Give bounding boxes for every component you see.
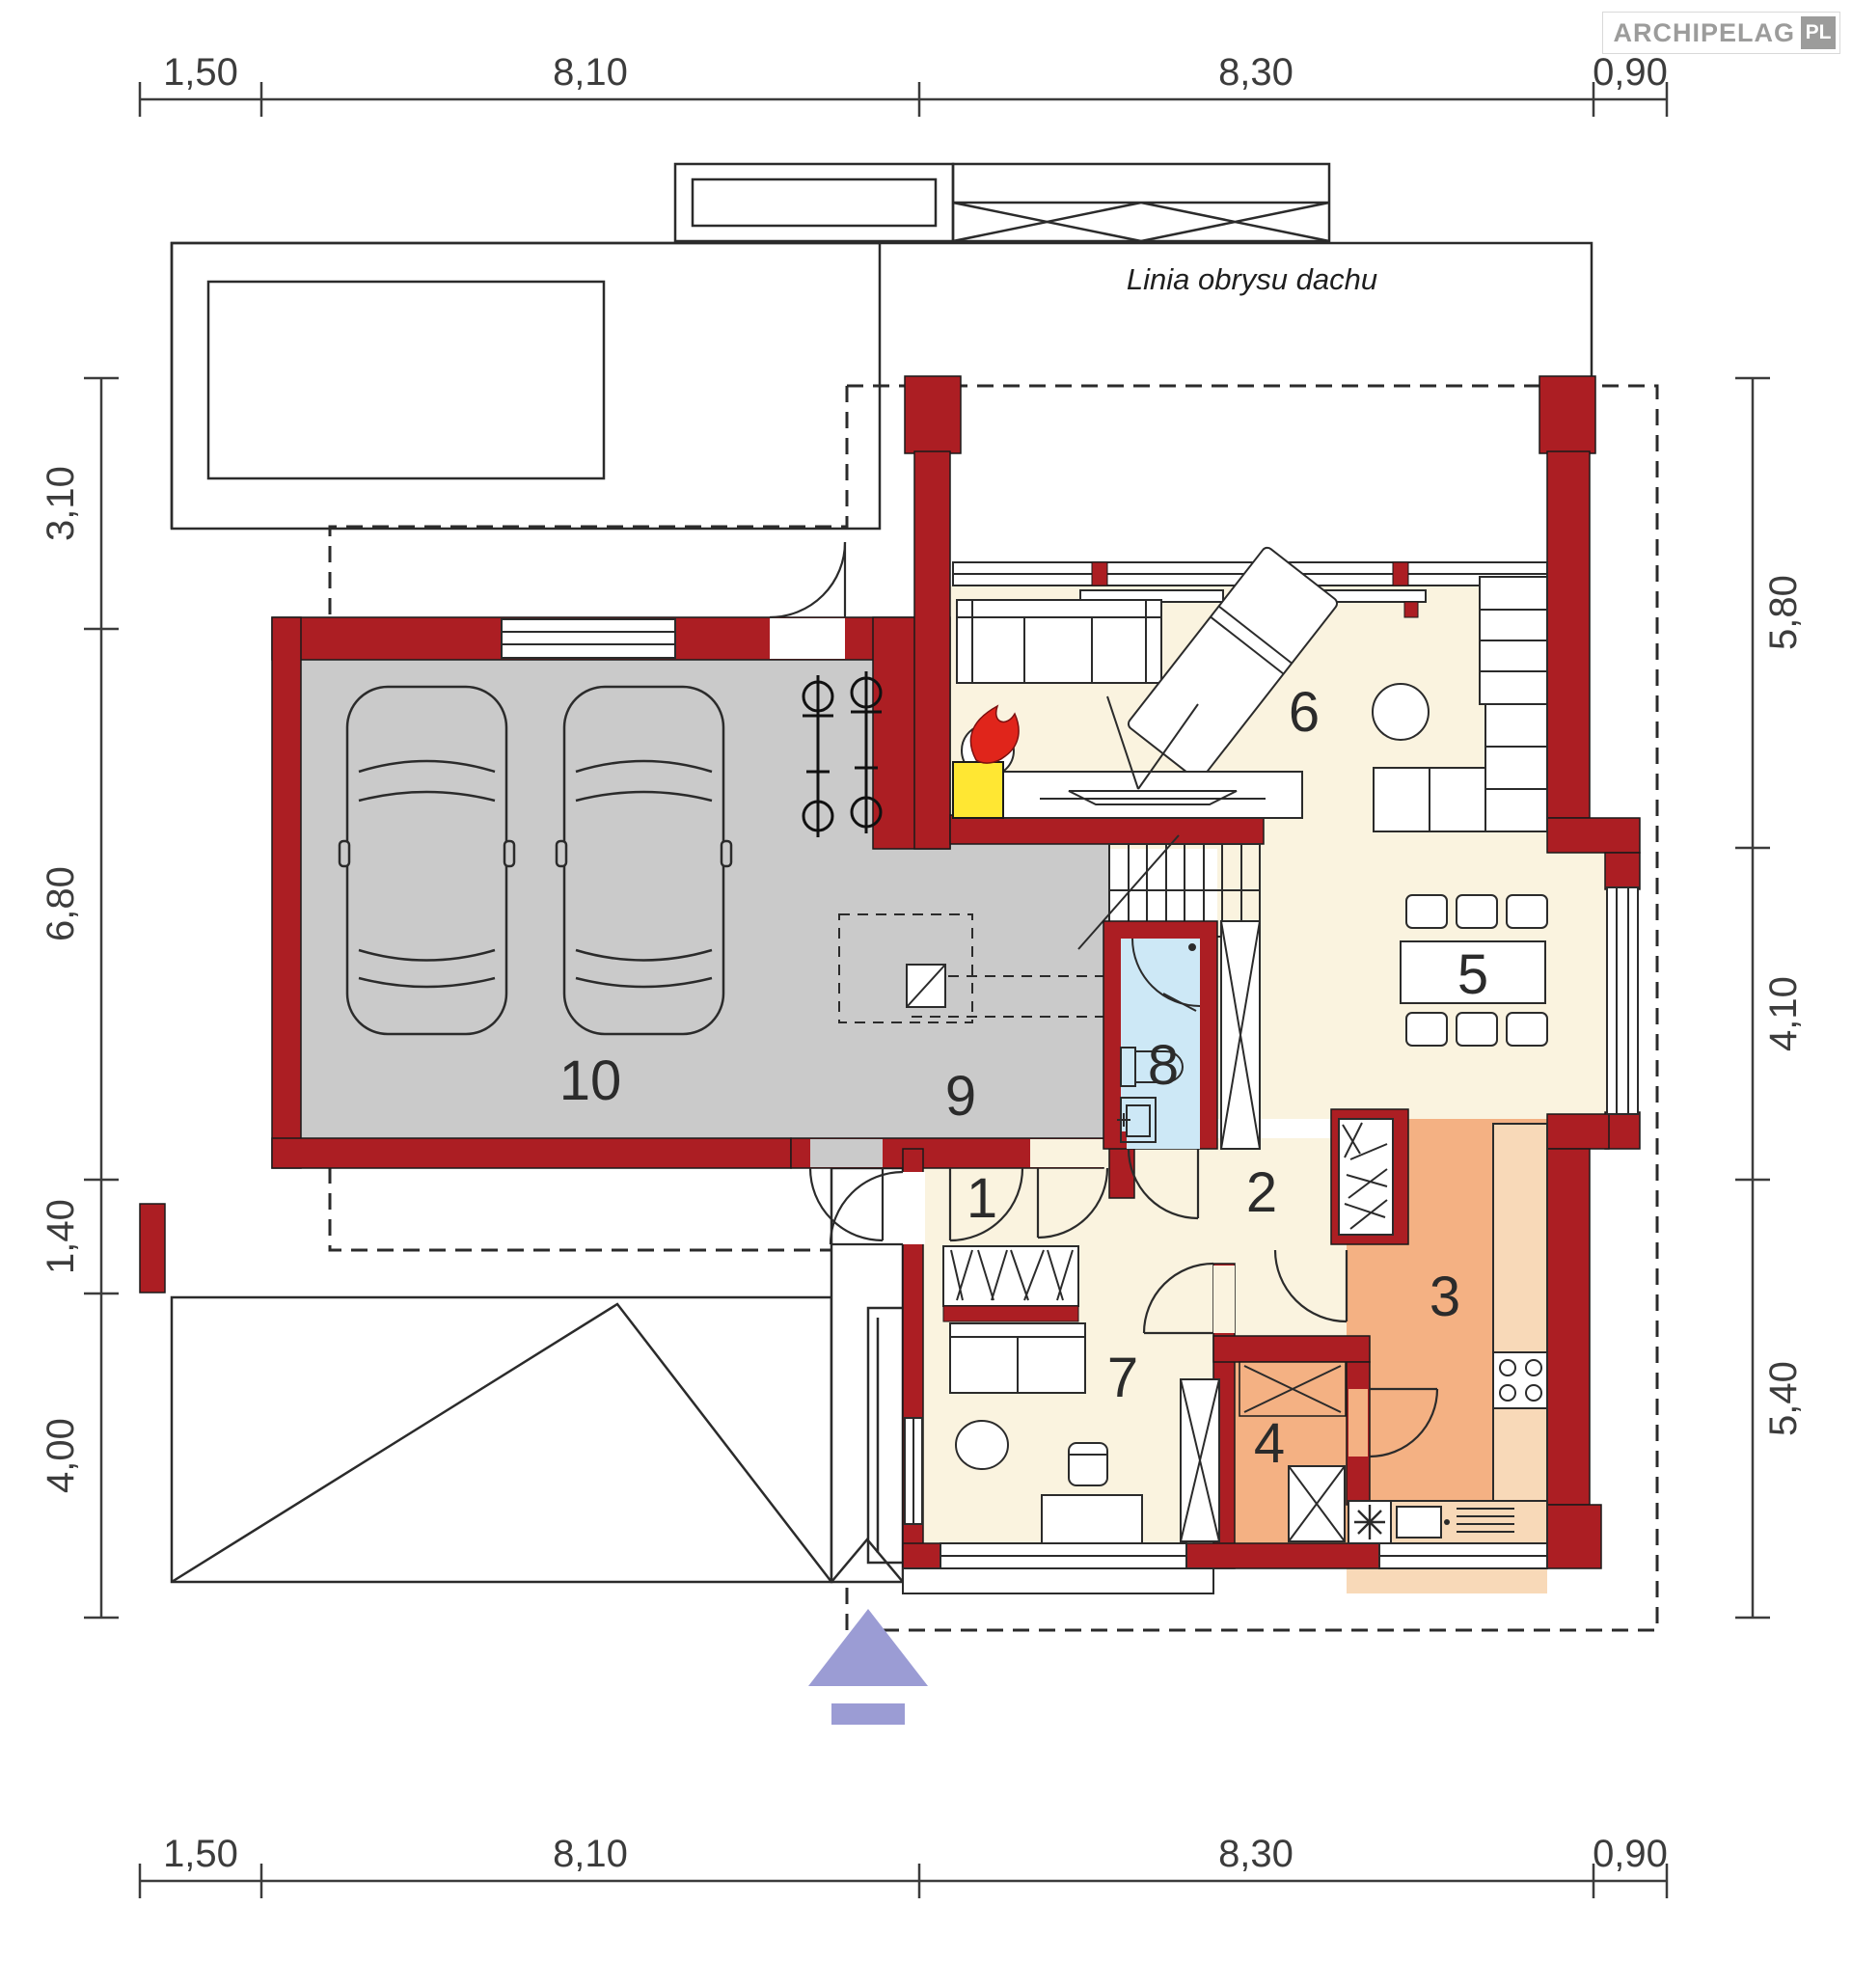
logo-country-badge: PL (1801, 16, 1836, 49)
kitchen-counter (1493, 1124, 1547, 1543)
kitchen-east-wall (1547, 1149, 1590, 1505)
south-wall (1186, 1543, 1379, 1568)
desk-chair-icon (1069, 1443, 1107, 1485)
dim-top-1: 1,50 (163, 51, 238, 94)
chair-icon (1406, 1013, 1447, 1046)
bay-pier-bottom (1605, 1112, 1640, 1149)
logo-brand-text: ARCHIPELAG (1613, 18, 1795, 48)
dim-bottom-3: 8,30 (1218, 1833, 1294, 1875)
archipelag-logo: ARCHIPELAG PL (1602, 12, 1840, 54)
upper-terrace-inner (208, 282, 604, 478)
dim-left-4: 4,00 (40, 1418, 82, 1493)
round-table-icon (956, 1421, 1008, 1469)
floor-plan-drawing: Linia obrysu dachu (0, 0, 1852, 1983)
garage-west-wall (272, 617, 301, 1168)
bay-south-wall (1547, 1114, 1609, 1149)
sofa-icon (957, 600, 1161, 683)
room-label-6: 6 (1289, 681, 1320, 744)
driveway (172, 1168, 903, 1582)
bay-pier-top (1605, 853, 1640, 889)
room-label-9: 9 (945, 1065, 976, 1128)
garage-terrace-door (770, 542, 845, 617)
room-label-5: 5 (1457, 943, 1488, 1006)
chair-icon (1457, 895, 1497, 928)
pantry-north-wall (1213, 1336, 1370, 1362)
fridge-snowflake-icon (1348, 1501, 1391, 1543)
dim-left-1: 3,10 (40, 466, 82, 541)
corner-southeast (1547, 1505, 1601, 1568)
garage-south-wall (272, 1138, 791, 1168)
chair-icon (1507, 1013, 1547, 1046)
garage-window (502, 619, 675, 658)
dim-bottom-1: 1,50 (163, 1833, 238, 1875)
dim-right-2: 4,10 (1762, 976, 1805, 1051)
kitchen-sink-icon (1397, 1507, 1441, 1538)
dim-bottom-2: 8,10 (553, 1833, 628, 1875)
closet-x-bathroom (1221, 921, 1260, 1149)
garden-wall-stub (140, 1204, 165, 1293)
vent-shaft (907, 965, 945, 1007)
study-cabinet-x (1181, 1379, 1219, 1541)
kitchen-sill (1347, 1568, 1547, 1593)
stove-icon (1493, 1352, 1547, 1408)
dim-left (84, 378, 119, 1618)
bay-north-wall (1547, 818, 1640, 853)
room-label-4: 4 (1254, 1412, 1285, 1475)
room-label-8: 8 (1148, 1034, 1179, 1097)
dim-bottom (140, 1864, 1667, 1898)
dim-left-3: 1,40 (40, 1199, 82, 1274)
terrace-pier-left (905, 376, 961, 453)
chair-icon (1507, 895, 1547, 928)
bay-window (1607, 887, 1638, 1114)
eave-outline (172, 164, 1592, 529)
hall-wardrobe (1331, 1109, 1408, 1244)
desk-icon (1042, 1495, 1142, 1543)
study-sofa-icon (950, 1323, 1085, 1393)
room-label-1: 1 (967, 1167, 997, 1230)
dim-top-2: 8,10 (553, 51, 628, 94)
room-label-3: 3 (1430, 1266, 1460, 1328)
dim-right-1: 5,80 (1762, 575, 1805, 650)
dim-bottom-4: 0,90 (1593, 1833, 1668, 1875)
stair-north-wall (950, 815, 1264, 844)
shelf-unit-icon (1480, 577, 1547, 704)
dormer-box (675, 164, 953, 241)
coffee-table-icon (1373, 684, 1429, 740)
vestibule-wardrobe (943, 1246, 1078, 1321)
dim-right-3: 5,40 (1762, 1361, 1805, 1436)
chair-icon (1406, 895, 1447, 928)
dim-top-3: 8,30 (1218, 51, 1294, 94)
entrance-arrow-icon (808, 1609, 928, 1725)
roof-outline-label: Linia obrysu dachu (1127, 262, 1377, 296)
room-label-10: 10 (559, 1049, 622, 1112)
dim-top (140, 82, 1667, 117)
dim-left-2: 6,80 (40, 866, 82, 941)
dim-top-4: 0,90 (1593, 51, 1668, 94)
room-label-2: 2 (1246, 1161, 1277, 1224)
car-icon (557, 687, 731, 1034)
porch-screen (868, 1308, 903, 1563)
south-sill (903, 1568, 1213, 1593)
car-icon (340, 687, 514, 1034)
upper-terrace-outline (172, 243, 880, 529)
living-east-wall (1547, 451, 1590, 818)
room-label-7: 7 (1107, 1347, 1138, 1409)
terrace-pier-right (1539, 376, 1595, 453)
chair-icon (1457, 1013, 1497, 1046)
living-west-wall (914, 451, 950, 849)
